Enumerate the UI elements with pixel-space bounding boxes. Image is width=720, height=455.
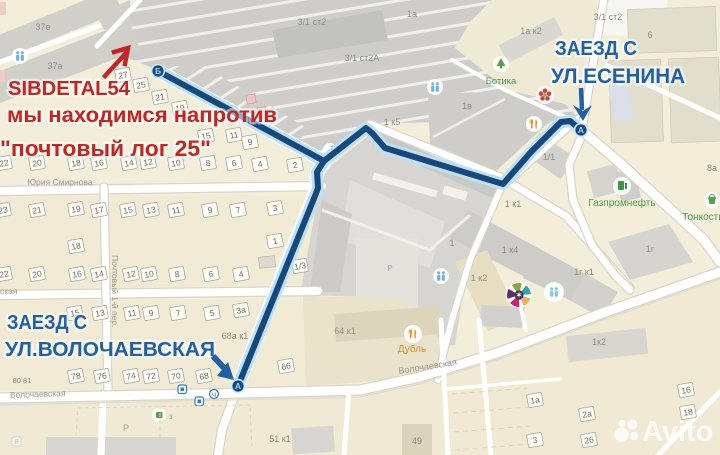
svg-text:25: 25 bbox=[135, 79, 146, 91]
svg-text:✶: ✶ bbox=[515, 290, 523, 300]
svg-text:1/3: 1/3 bbox=[293, 260, 307, 272]
svg-text:Avito: Avito bbox=[642, 416, 713, 448]
svg-text:16: 16 bbox=[71, 268, 82, 280]
svg-text:SIBDETAL54: SIBDETAL54 bbox=[8, 78, 131, 100]
svg-text:14: 14 bbox=[93, 268, 104, 280]
svg-text:3/1 ст2А: 3/1 ст2А bbox=[345, 53, 380, 63]
svg-text:1 к5: 1 к5 bbox=[384, 117, 400, 127]
svg-text:Газпромнефть: Газпромнефть bbox=[588, 197, 655, 209]
svg-text:26: 26 bbox=[583, 434, 594, 446]
svg-text:1в: 1в bbox=[462, 101, 472, 111]
svg-text:ская: ская bbox=[0, 286, 18, 296]
svg-text:68: 68 bbox=[198, 370, 209, 382]
svg-text:3а: 3а bbox=[235, 304, 246, 316]
svg-text:1а к2: 1а к2 bbox=[520, 26, 541, 36]
svg-text:64 к1: 64 к1 bbox=[334, 326, 355, 336]
svg-text:Р: Р bbox=[123, 423, 129, 433]
svg-text:3/1 ст2: 3/1 ст2 bbox=[298, 17, 327, 27]
svg-text:37а: 37а bbox=[47, 61, 62, 71]
svg-text:1а: 1а bbox=[407, 9, 417, 19]
svg-text:72: 72 bbox=[145, 370, 156, 382]
svg-text:51 к1: 51 к1 bbox=[269, 434, 290, 444]
svg-text:13: 13 bbox=[145, 204, 156, 216]
svg-text:17: 17 bbox=[93, 204, 104, 216]
svg-text:1г: 1г bbox=[646, 244, 655, 254]
svg-text:1а: 1а bbox=[529, 394, 540, 406]
svg-text:Почтовый 1-й пер.: Почтовый 1-й пер. bbox=[110, 255, 120, 327]
svg-text:Волочаевская: Волочаевская bbox=[10, 388, 66, 400]
svg-text:А: А bbox=[578, 125, 584, 135]
svg-text:1г к1: 1г к1 bbox=[574, 267, 594, 277]
svg-text:6: 6 bbox=[647, 30, 652, 40]
svg-text:мы находимся напротив: мы находимся напротив bbox=[7, 103, 277, 127]
svg-text:16: 16 bbox=[680, 384, 691, 396]
svg-text:74: 74 bbox=[125, 370, 136, 382]
svg-text:76: 76 bbox=[96, 370, 107, 382]
svg-text:21: 21 bbox=[154, 91, 165, 103]
svg-text:1: 1 bbox=[449, 238, 454, 248]
svg-text:А: А bbox=[235, 381, 241, 391]
svg-text:Я: Я bbox=[14, 439, 19, 446]
svg-text:Юрия Смирнова: Юрия Смирнова bbox=[27, 177, 92, 187]
svg-text:80 81: 80 81 bbox=[13, 376, 32, 385]
svg-text:68а к1: 68а к1 bbox=[222, 331, 248, 341]
svg-text:20: 20 bbox=[31, 268, 42, 280]
svg-text:37е: 37е bbox=[35, 22, 50, 32]
svg-text:15: 15 bbox=[122, 204, 133, 216]
svg-text:1 к4: 1 к4 bbox=[502, 245, 518, 255]
svg-text:ЗАЕЗД С: ЗАЕЗД С bbox=[555, 37, 637, 60]
svg-text:70: 70 bbox=[170, 370, 181, 382]
svg-text:12: 12 bbox=[125, 268, 136, 280]
svg-text:Ботика: Ботика bbox=[486, 76, 517, 87]
svg-text:ЗАЕЗД С: ЗАЕЗД С bbox=[7, 311, 87, 334]
svg-text:Ч: Ч bbox=[212, 392, 216, 399]
svg-text:Р: Р bbox=[387, 264, 392, 273]
svg-text:УЛ.ЕСЕНИНА: УЛ.ЕСЕНИНА bbox=[551, 65, 685, 88]
svg-text:2а: 2а bbox=[581, 408, 592, 420]
svg-text:"почтовый лог 25": "почтовый лог 25" bbox=[0, 136, 211, 161]
svg-text:УЛ.ВОЛОЧАЕВСКАЯ: УЛ.ВОЛОЧАЕВСКАЯ bbox=[5, 338, 215, 361]
svg-text:10: 10 bbox=[143, 268, 154, 280]
svg-text:18: 18 bbox=[70, 240, 81, 252]
svg-text:78: 78 bbox=[70, 370, 81, 382]
svg-text:Дубль: Дубль bbox=[398, 343, 426, 355]
svg-text:8а: 8а bbox=[707, 163, 717, 173]
svg-text:66: 66 bbox=[280, 360, 291, 372]
svg-text:Б: Б bbox=[155, 66, 161, 76]
svg-text:49: 49 bbox=[412, 436, 422, 446]
svg-text:3/1 ст2: 3/1 ст2 bbox=[594, 12, 623, 22]
svg-text:1 к1: 1 к1 bbox=[505, 199, 521, 209]
svg-text:13: 13 bbox=[94, 307, 105, 319]
svg-text:21: 21 bbox=[31, 204, 42, 216]
svg-text:1/1: 1/1 bbox=[543, 152, 556, 162]
svg-text:Тонкости: Тонкости bbox=[682, 212, 720, 223]
svg-text:з: з bbox=[169, 412, 173, 421]
svg-text:1к2: 1к2 bbox=[592, 337, 606, 347]
svg-text:19: 19 bbox=[70, 203, 81, 215]
svg-text:1 к2: 1 к2 bbox=[471, 273, 487, 283]
